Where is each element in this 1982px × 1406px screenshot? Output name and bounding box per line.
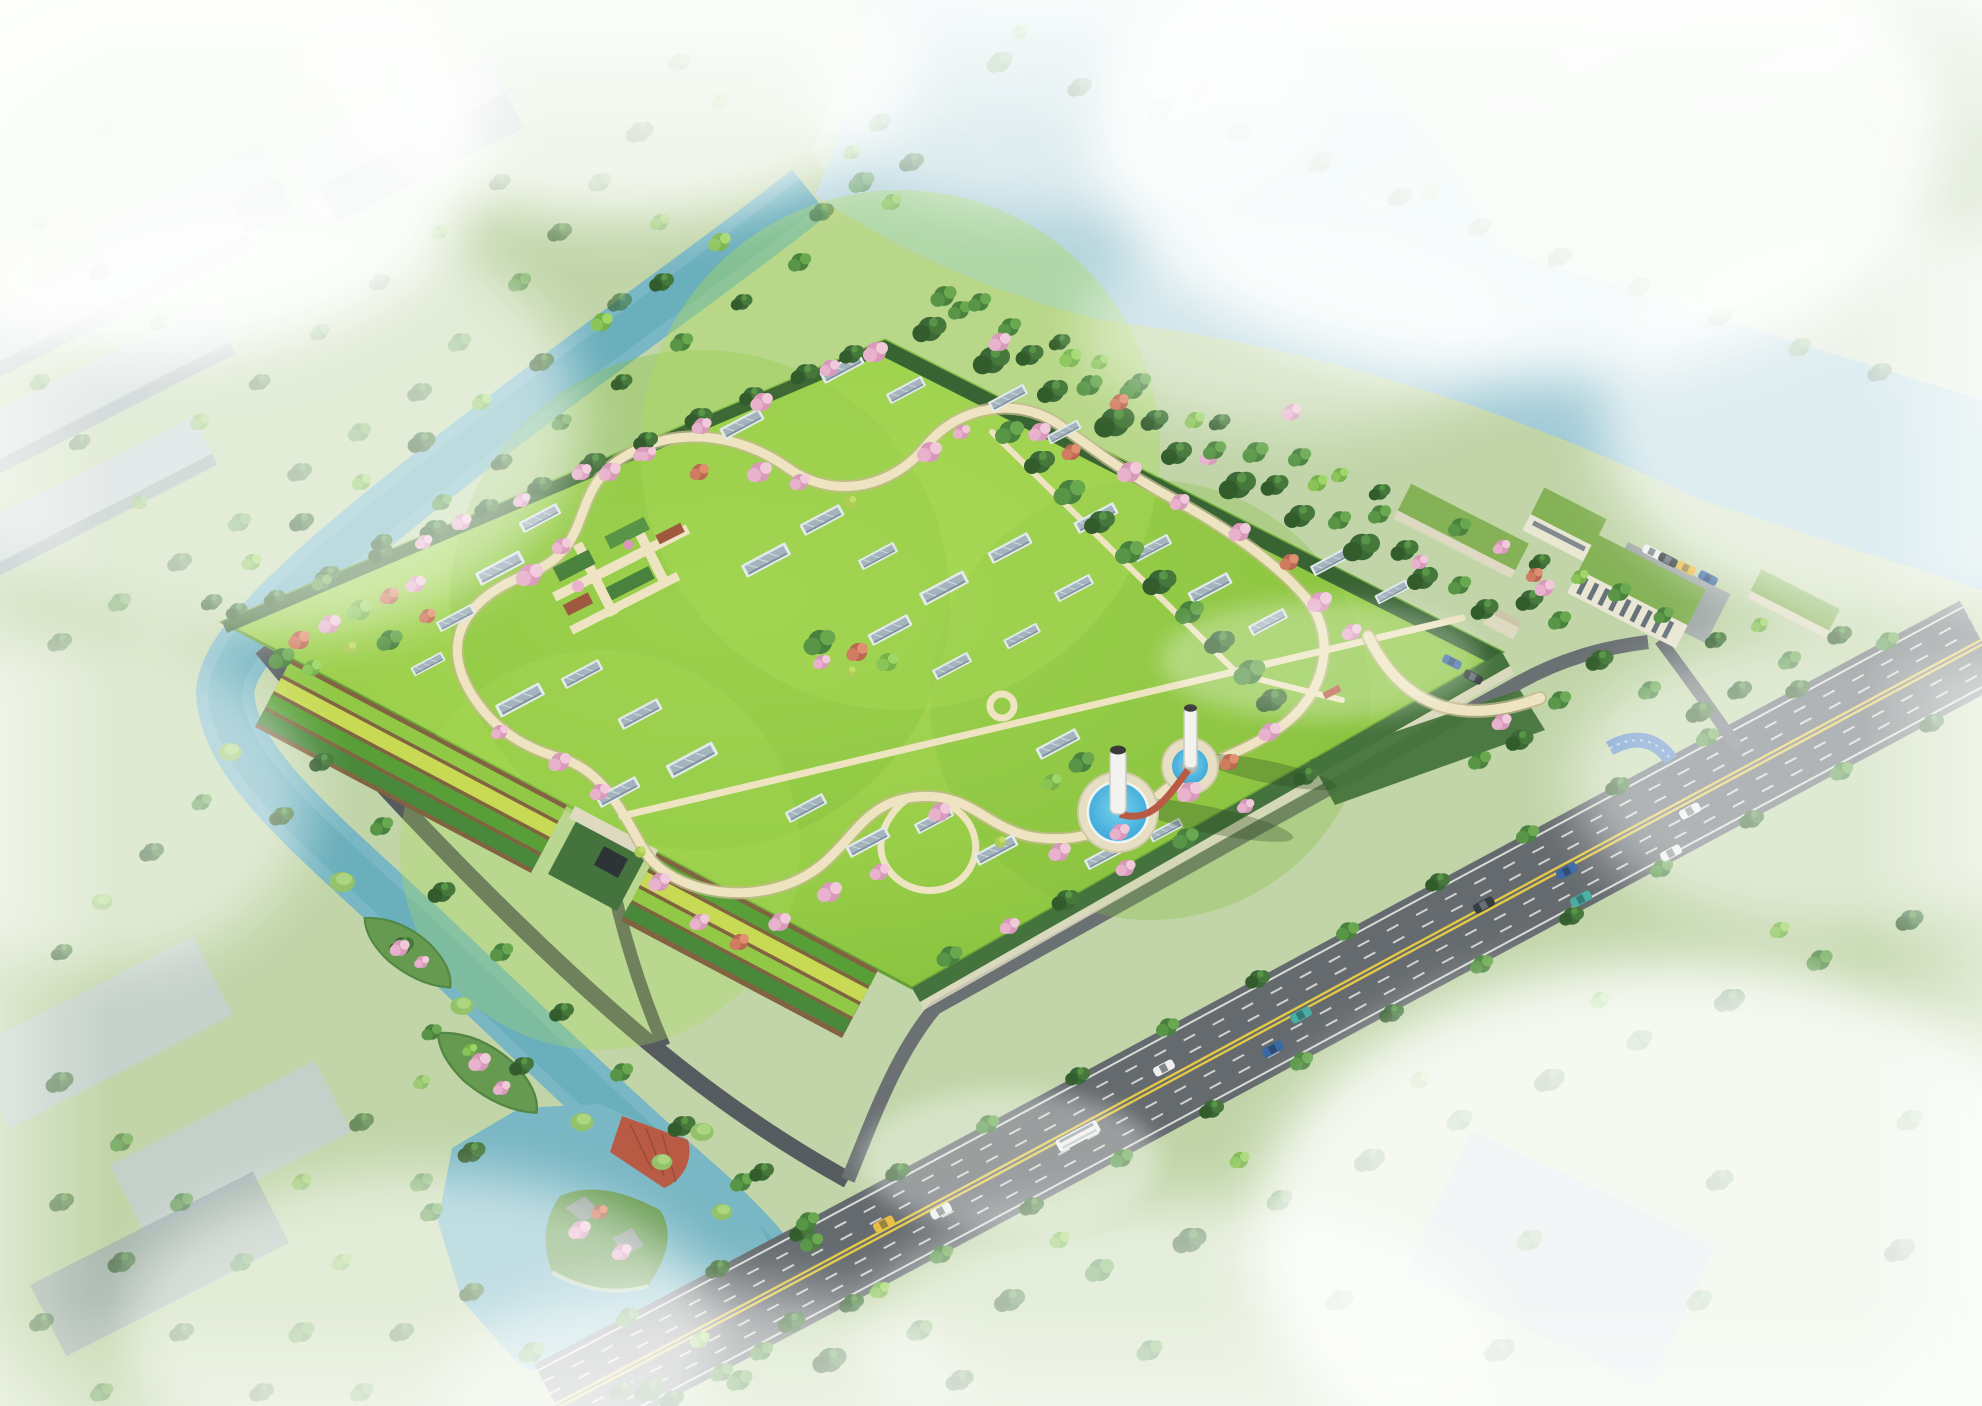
- global-haze: [0, 0, 1982, 1406]
- fog-layer: [0, 0, 1982, 1406]
- aerial-rendering: [0, 0, 1982, 1406]
